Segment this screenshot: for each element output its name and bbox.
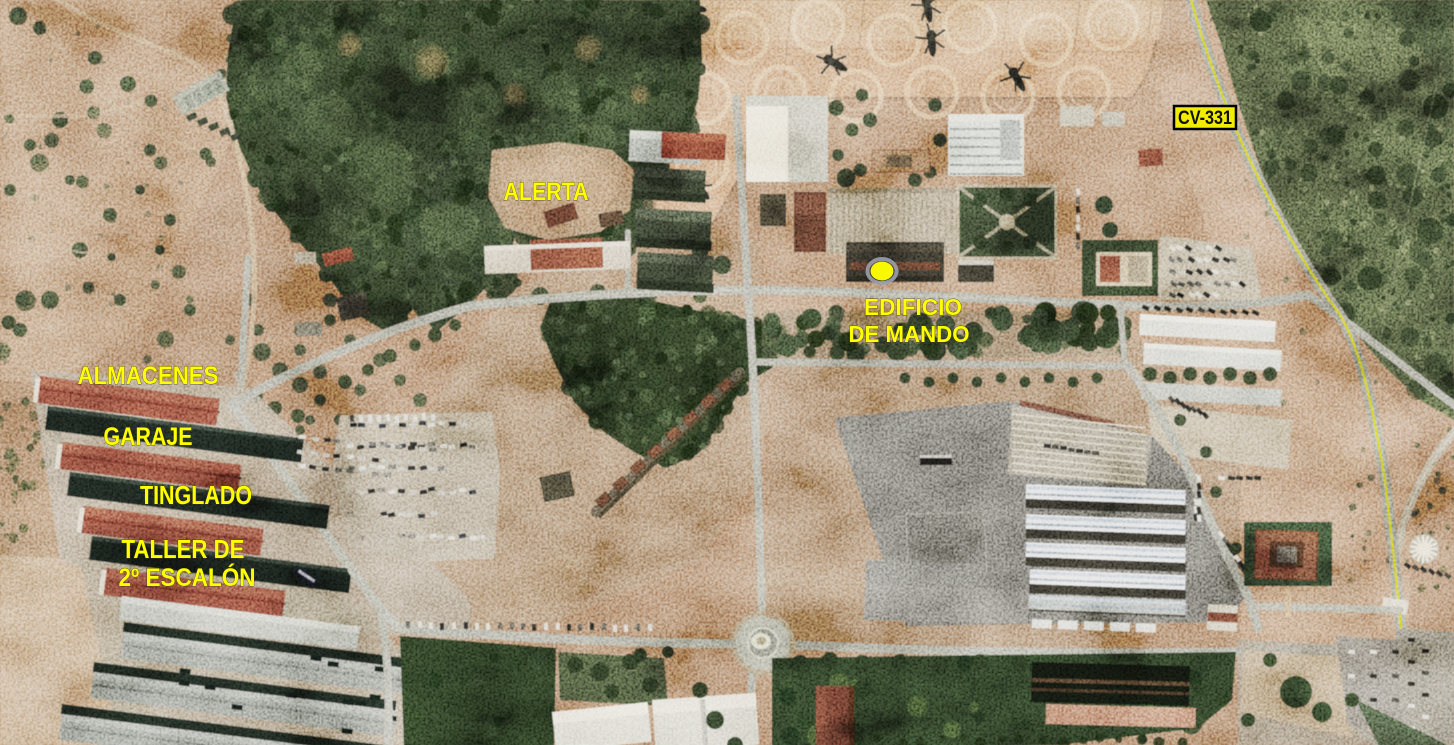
svg-text:CV-331: CV-331	[1178, 108, 1232, 129]
svg-text:ALMACENES: ALMACENES	[78, 362, 219, 390]
svg-text:TALLER DE: TALLER DE	[122, 534, 245, 564]
svg-text:2º ESCALÓN: 2º ESCALÓN	[119, 562, 256, 592]
svg-text:GARAJE: GARAJE	[104, 423, 193, 451]
svg-text:EDIFICIO: EDIFICIO	[864, 294, 962, 320]
svg-text:TINGLADO: TINGLADO	[140, 480, 252, 510]
svg-text:ALERTA: ALERTA	[504, 178, 589, 206]
svg-text:DE MANDO: DE MANDO	[849, 321, 970, 347]
